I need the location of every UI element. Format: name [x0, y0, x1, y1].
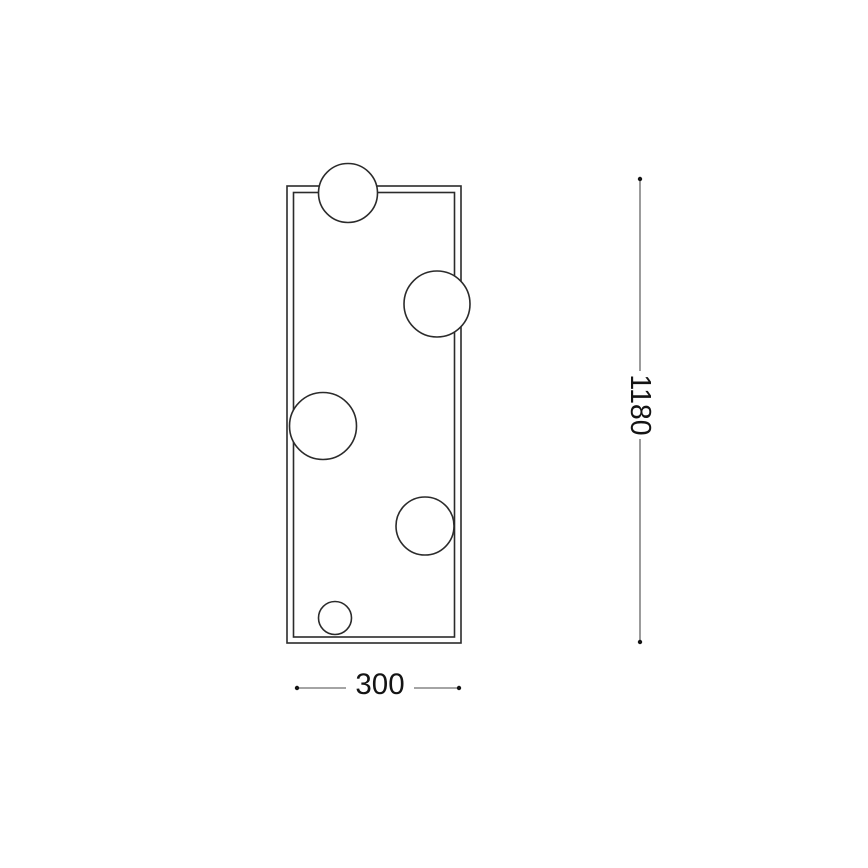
sphere-lamp-1	[319, 164, 378, 223]
sphere-lamp-5	[319, 602, 352, 635]
sphere-lamp-3	[290, 393, 357, 460]
width-dim-end-dot-right	[457, 686, 461, 690]
height-dim-end-dot-bottom	[638, 640, 642, 644]
sphere-lamps	[290, 164, 471, 635]
sphere-lamp-4	[396, 497, 454, 555]
height-dim-end-dot-top	[638, 177, 642, 181]
sphere-lamp-2	[404, 271, 470, 337]
height-dimension-label: 1180	[624, 374, 656, 435]
width-dimension-label: 300	[355, 668, 404, 701]
drawing-canvas: 1180 300	[0, 0, 868, 868]
width-dim-end-dot-left	[295, 686, 299, 690]
dimension-drawing: 1180 300	[0, 0, 868, 868]
